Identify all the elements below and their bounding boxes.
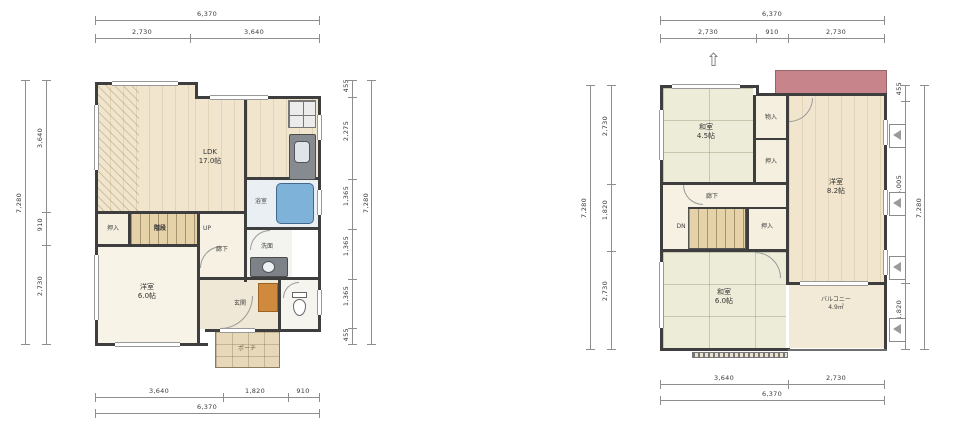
kitchen-sink-icon xyxy=(294,141,310,163)
tick xyxy=(901,101,910,102)
dimension-line xyxy=(371,80,372,345)
dim-label: 910 xyxy=(36,218,44,231)
room-area: 4.9㎡ xyxy=(821,304,851,312)
room-name: 和室 xyxy=(697,123,715,132)
entrance-mat xyxy=(258,283,278,312)
dim-label: 6,370 xyxy=(762,10,782,18)
tick xyxy=(607,349,616,350)
dimension-line xyxy=(95,38,320,39)
room-area: 6.0帖 xyxy=(138,292,156,301)
tick xyxy=(884,396,885,405)
window xyxy=(883,120,888,145)
up-arrow-icon: ⇧ xyxy=(706,52,721,70)
window-swing-icon xyxy=(889,318,906,342)
tick xyxy=(42,80,51,81)
dim-label: 2,730 xyxy=(132,28,152,36)
tick xyxy=(348,229,357,230)
dimension-line xyxy=(660,384,885,385)
tick xyxy=(95,16,96,25)
dim-label: 3,640 xyxy=(36,128,44,148)
tick xyxy=(95,409,96,418)
dim-label: 1,365 xyxy=(342,186,350,206)
dim-label: 6,370 xyxy=(197,10,217,18)
dim-label: 2,730 xyxy=(698,28,718,36)
dim-label: 1,820 xyxy=(245,387,265,395)
room-label-stairs: 階段 xyxy=(154,225,166,233)
room-label-bedroom-2f: 洋室 8.2帖 xyxy=(827,178,845,196)
wall-segment xyxy=(95,244,200,247)
tick xyxy=(788,34,789,43)
tick xyxy=(884,34,885,43)
tick xyxy=(223,393,224,402)
tick xyxy=(660,16,661,25)
room-name: 洋室 xyxy=(827,178,845,187)
porch-label: ポーチ xyxy=(238,345,256,353)
room-label-storage: 物入 xyxy=(765,114,777,122)
window xyxy=(883,190,888,215)
dim-label: 6,370 xyxy=(762,390,782,398)
tick xyxy=(319,409,320,418)
tick xyxy=(660,396,661,405)
room-label-entrance: 玄関 xyxy=(234,300,246,308)
dimension-line xyxy=(660,20,885,21)
tick xyxy=(660,380,661,389)
room-label-wash: 洗面 xyxy=(261,243,273,251)
tick xyxy=(288,393,289,402)
tick xyxy=(607,251,616,252)
tick xyxy=(607,85,616,86)
tick xyxy=(21,344,30,345)
triangle-icon xyxy=(893,198,901,208)
tick xyxy=(95,393,96,402)
dim-label: 1,820 xyxy=(601,200,609,220)
window-swing-icon xyxy=(889,192,906,216)
room-label-bedroom: 洋室 6.0帖 xyxy=(138,283,156,301)
dimension-line xyxy=(660,38,885,39)
room-name: 洋室 xyxy=(138,283,156,292)
window-swing-icon xyxy=(889,256,906,280)
room-label-hall-2f: 廊下 xyxy=(706,193,718,201)
wall-segment xyxy=(753,182,787,185)
tick xyxy=(319,393,320,402)
room-label-washitsu-45: 和室 4.5帖 xyxy=(697,123,715,141)
tick xyxy=(901,349,910,350)
tick xyxy=(348,97,357,98)
dim-label: 910 xyxy=(296,387,309,395)
tick xyxy=(920,349,929,350)
dim-label: 3,640 xyxy=(244,28,264,36)
wall-segment xyxy=(278,279,281,332)
window xyxy=(659,262,664,328)
window xyxy=(94,255,99,320)
window-sill-hatch xyxy=(692,352,788,358)
room-label-closet2: 押入 xyxy=(761,223,773,231)
tick xyxy=(190,34,191,43)
wall-segment xyxy=(753,138,787,140)
dim-label: 2,730 xyxy=(36,276,44,296)
wall-segment xyxy=(197,277,321,280)
tick xyxy=(367,344,376,345)
dim-label: 910 xyxy=(765,28,778,36)
toilet-tank-icon xyxy=(292,292,307,298)
window xyxy=(112,81,178,86)
dimension-line xyxy=(611,85,612,350)
tick xyxy=(42,212,51,213)
wall-segment xyxy=(756,93,887,96)
dim-label: 3,640 xyxy=(714,374,734,382)
tick xyxy=(348,344,357,345)
dim-label: 1,365 xyxy=(342,286,350,306)
room-area: 8.2帖 xyxy=(827,187,845,196)
tick xyxy=(319,16,320,25)
wall-segment xyxy=(660,182,756,185)
triangle-icon xyxy=(893,262,901,272)
room-label-balcony: バルコニー 4.9㎡ xyxy=(821,296,851,312)
room-area: 4.5帖 xyxy=(697,132,715,141)
tick xyxy=(607,184,616,185)
room-label-closet1: 押入 xyxy=(765,158,777,166)
dim-label: 7,280 xyxy=(915,198,923,218)
stairs-dn-label: DN xyxy=(676,223,685,231)
dimension-line xyxy=(95,413,320,414)
dim-label: 455 xyxy=(342,328,350,341)
window xyxy=(317,115,322,140)
wall-segment xyxy=(244,227,321,230)
floor-hatch-texture xyxy=(97,84,139,213)
dim-label: 7,280 xyxy=(580,198,588,218)
tick xyxy=(367,80,376,81)
tick xyxy=(348,179,357,180)
tick xyxy=(756,34,757,43)
wall-segment xyxy=(746,208,749,251)
wall-segment xyxy=(688,207,787,209)
dim-label: 2,730 xyxy=(601,281,609,301)
stairs-down xyxy=(688,208,746,249)
window xyxy=(210,95,268,100)
triangle-icon xyxy=(893,130,901,140)
dimension-line xyxy=(590,85,591,350)
room-label-ldk: LDK 17.0帖 xyxy=(199,148,222,166)
entrance-door-opening xyxy=(220,328,255,333)
room-label-hall: 廊下 xyxy=(216,246,228,254)
dim-label: 7,280 xyxy=(15,193,23,213)
room-name: LDK xyxy=(199,148,222,157)
tick xyxy=(788,380,789,389)
tick xyxy=(586,349,595,350)
window xyxy=(94,105,99,170)
dim-label: 455 xyxy=(342,79,350,92)
balcony xyxy=(789,285,884,348)
dimension-line xyxy=(25,80,26,345)
wall-segment xyxy=(660,249,789,252)
tick xyxy=(42,344,51,345)
window-swing-icon xyxy=(889,124,906,148)
floor-plan-canvas: 6,370 2,730 3,640 3,640 1,820 910 6,370 … xyxy=(0,0,960,441)
window xyxy=(659,110,664,160)
room-label-closet: 押入 xyxy=(107,225,119,233)
dim-label: 3,640 xyxy=(149,387,169,395)
tick xyxy=(884,16,885,25)
tick xyxy=(319,34,320,43)
stairs-up-label: UP xyxy=(203,225,211,233)
dim-label: 2,730 xyxy=(601,116,609,136)
tick xyxy=(586,85,595,86)
tick xyxy=(901,283,910,284)
dim-label: 2,730 xyxy=(826,374,846,382)
window xyxy=(883,250,888,275)
dimension-line xyxy=(352,80,353,345)
wall-segment xyxy=(244,96,247,282)
dimension-line xyxy=(924,85,925,350)
window xyxy=(317,190,322,215)
room-area: 17.0帖 xyxy=(199,157,222,166)
tick xyxy=(42,245,51,246)
tick xyxy=(884,380,885,389)
tick xyxy=(348,279,357,280)
window xyxy=(317,290,322,315)
dim-label: 2,275 xyxy=(342,121,350,141)
tick xyxy=(920,85,929,86)
dimension-line xyxy=(95,397,320,398)
dim-label: 6,370 xyxy=(197,403,217,411)
wall-segment xyxy=(660,348,790,351)
balcony-railing xyxy=(788,349,887,351)
dim-label: 1,365 xyxy=(342,236,350,256)
triangle-icon xyxy=(893,324,901,334)
window xyxy=(115,342,180,347)
window xyxy=(800,281,868,286)
bathtub-icon xyxy=(276,183,314,224)
wall-segment xyxy=(95,211,247,214)
dimension-line xyxy=(95,20,320,21)
window xyxy=(672,84,740,89)
dimension-line xyxy=(660,400,885,401)
stove-icon xyxy=(288,100,316,128)
tick xyxy=(21,80,30,81)
washbasin-bowl-icon xyxy=(262,261,275,273)
room-label-bath: 浴室 xyxy=(255,198,267,206)
wall-segment xyxy=(128,211,131,247)
room-name: バルコニー xyxy=(821,296,851,304)
room-name: 和室 xyxy=(715,288,733,297)
tick xyxy=(95,34,96,43)
tick xyxy=(660,34,661,43)
dim-label: 7,280 xyxy=(362,193,370,213)
dim-label: 2,730 xyxy=(826,28,846,36)
room-area: 6.0帖 xyxy=(715,297,733,306)
dim-label: 455 xyxy=(895,82,903,95)
room-label-washitsu-60: 和室 6.0帖 xyxy=(715,288,733,306)
